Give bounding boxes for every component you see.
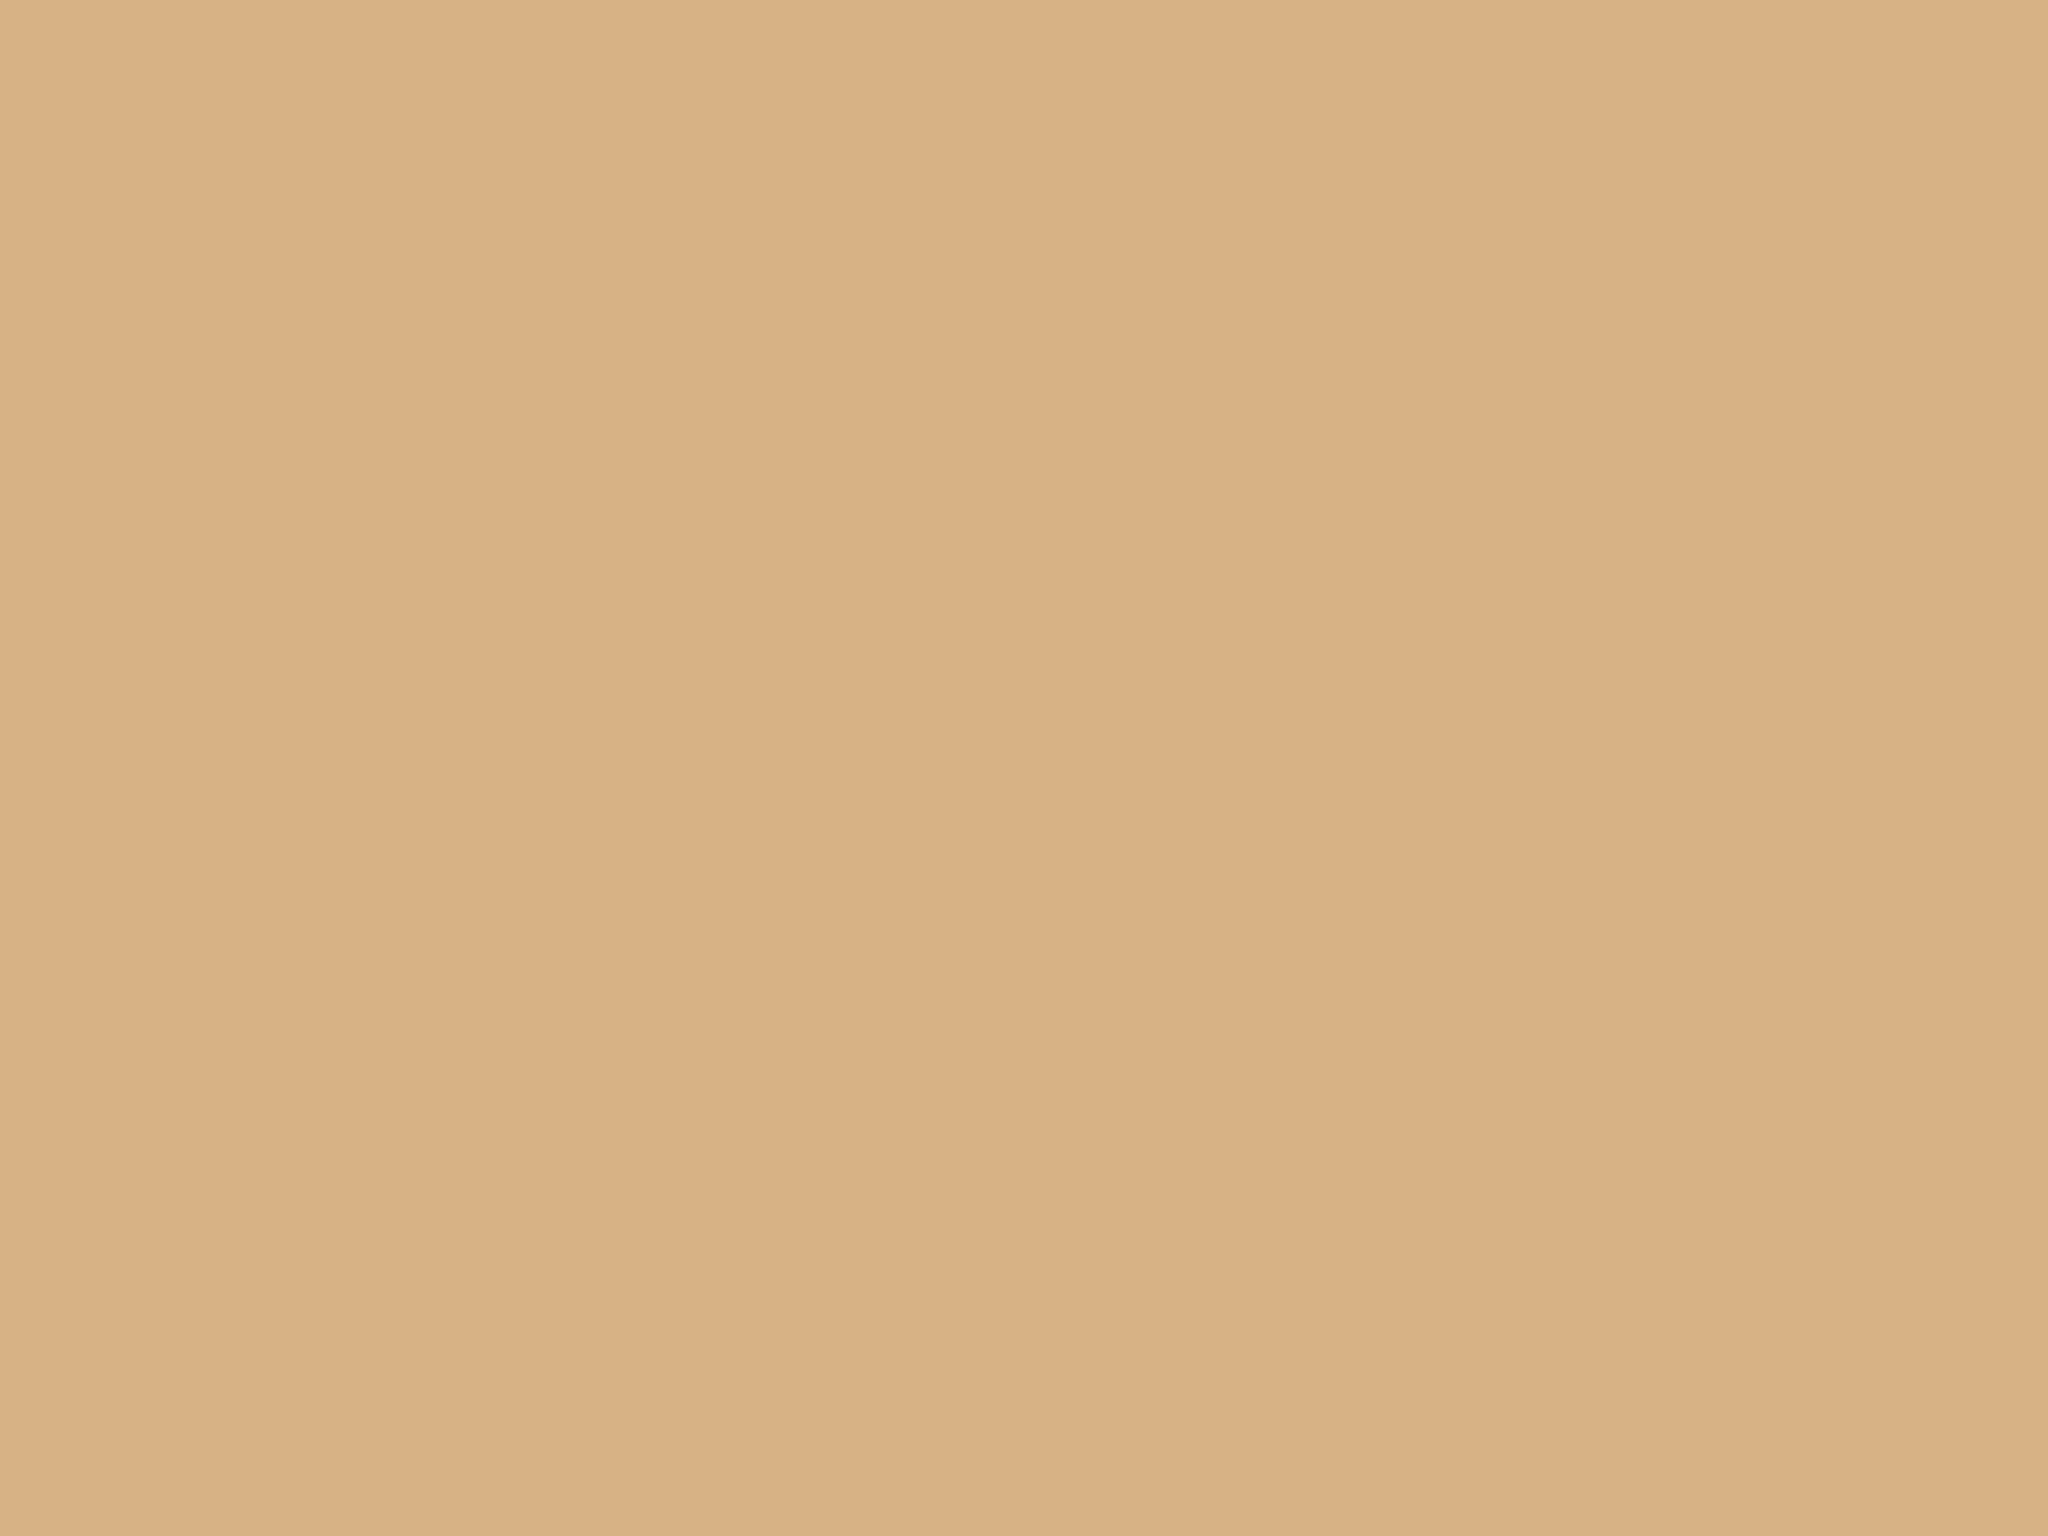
scene-canvas (0, 0, 2048, 1536)
aerial-photo (0, 0, 2048, 1536)
